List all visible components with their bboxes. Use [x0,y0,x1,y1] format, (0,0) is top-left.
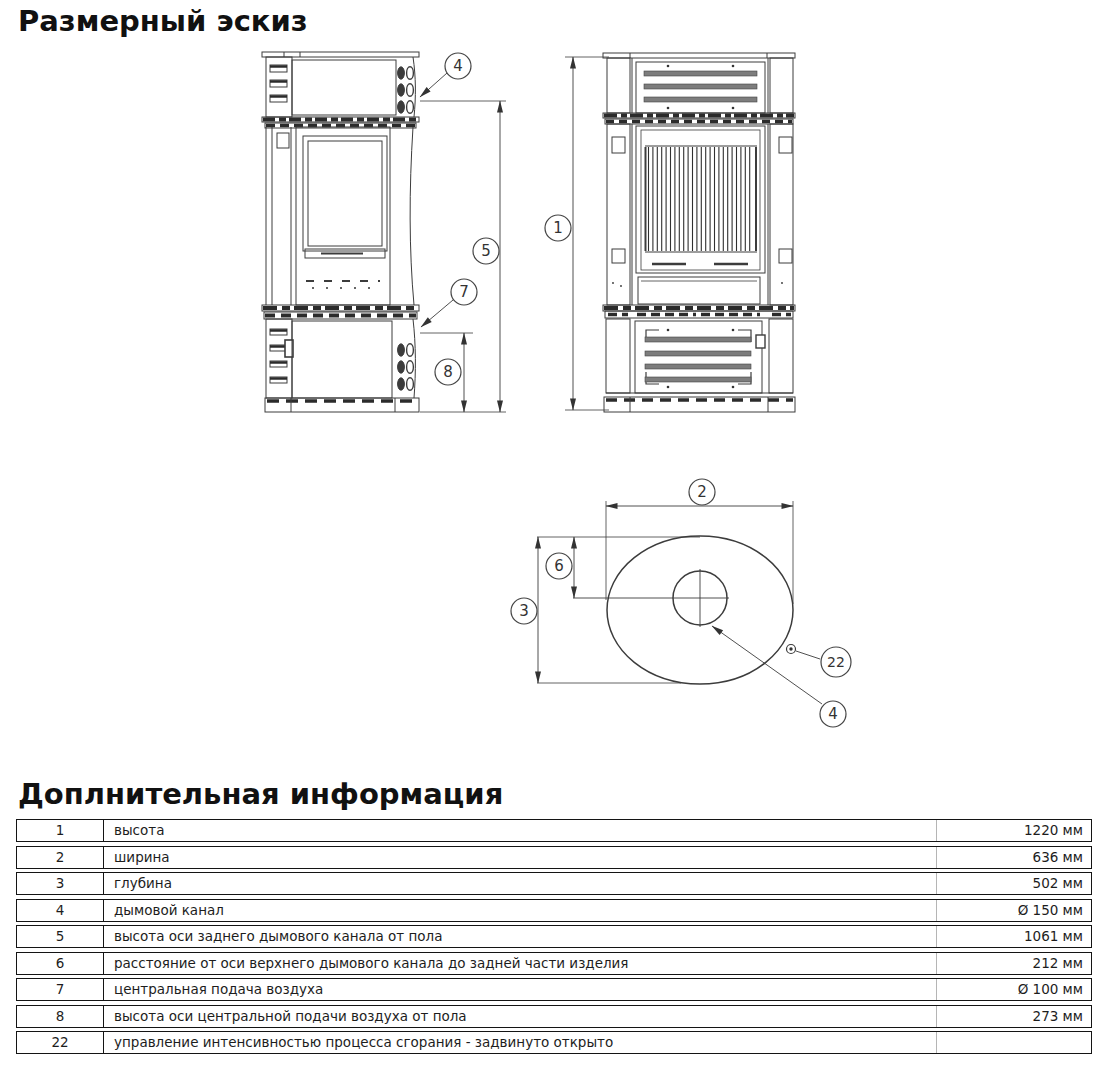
table-row: 22 управление интенсивностью процесса сг… [16,1031,1092,1054]
table-row: 8 высота оси центральной подачи воздуха … [16,1005,1092,1028]
row-description: центральная подача воздуха [104,979,936,1000]
callout-4-label: 4 [453,57,463,75]
callout-8-label: 8 [443,363,453,381]
callout-3-label: 3 [519,602,529,620]
callout-4b-label: 4 [828,705,838,723]
dimension-sketch: 4 5 7 8 [0,0,1108,770]
table-row: 1 высота 1220 мм [16,819,1092,842]
callout-22-label: 22 [827,654,845,670]
callout-7-label: 7 [459,283,469,301]
glass-stripes [649,147,750,251]
info-section-title: Доплнительная информация [18,777,503,811]
row-number: 8 [17,1006,104,1027]
row-value: 273 мм [936,1006,1091,1027]
front-view-drawing [565,53,795,412]
row-number: 7 [17,979,104,1000]
table-row: 7 центральная подача воздуха Ø 100 мм [16,978,1092,1001]
row-value: 502 мм [936,873,1091,894]
table-row: 3 глубина 502 мм [16,872,1092,895]
row-value: 1061 мм [936,926,1091,947]
row-description: высота оси центральной подачи воздуха от… [104,1006,936,1027]
row-description: расстояние от оси верхнего дымового кана… [104,953,936,974]
info-table: 1 высота 1220 мм 2 ширина 636 мм 3 глуби… [16,819,1092,1058]
row-value: Ø 100 мм [936,979,1091,1000]
row-value: 636 мм [936,847,1091,868]
row-number: 3 [17,873,104,894]
top-view-drawing: 2 6 3 22 4 [511,479,851,727]
row-number: 2 [17,847,104,868]
row-number: 1 [17,820,104,841]
front-view-dimension-badge: 1 [545,215,571,241]
row-number: 4 [17,900,104,921]
side-view-dimensions: 4 5 7 8 [420,53,506,412]
row-description: высота [104,820,936,841]
stove-handle [756,335,765,348]
row-description: дымовой канал [104,900,936,921]
side-view-drawing [262,52,419,412]
row-number: 22 [17,1032,104,1053]
row-description: глубина [104,873,936,894]
row-value: Ø 150 мм [936,900,1091,921]
row-value [936,1032,1091,1053]
row-description: ширина [104,847,936,868]
callout-5-label: 5 [481,242,491,260]
callout-1-label: 1 [553,219,563,237]
row-description: управление интенсивностью процесса сгора… [104,1032,936,1053]
table-row: 5 высота оси заднего дымового канала от … [16,925,1092,948]
row-value: 1220 мм [936,820,1091,841]
callout-2-label: 2 [697,483,707,501]
row-number: 6 [17,953,104,974]
row-value: 212 мм [936,953,1091,974]
callout-6-label: 6 [554,557,564,575]
row-number: 5 [17,926,104,947]
table-row: 6 расстояние от оси верхнего дымового ка… [16,952,1092,975]
table-row: 4 дымовой канал Ø 150 мм [16,899,1092,922]
row-description: высота оси заднего дымового канала от по… [104,926,936,947]
table-row: 2 ширина 636 мм [16,846,1092,869]
